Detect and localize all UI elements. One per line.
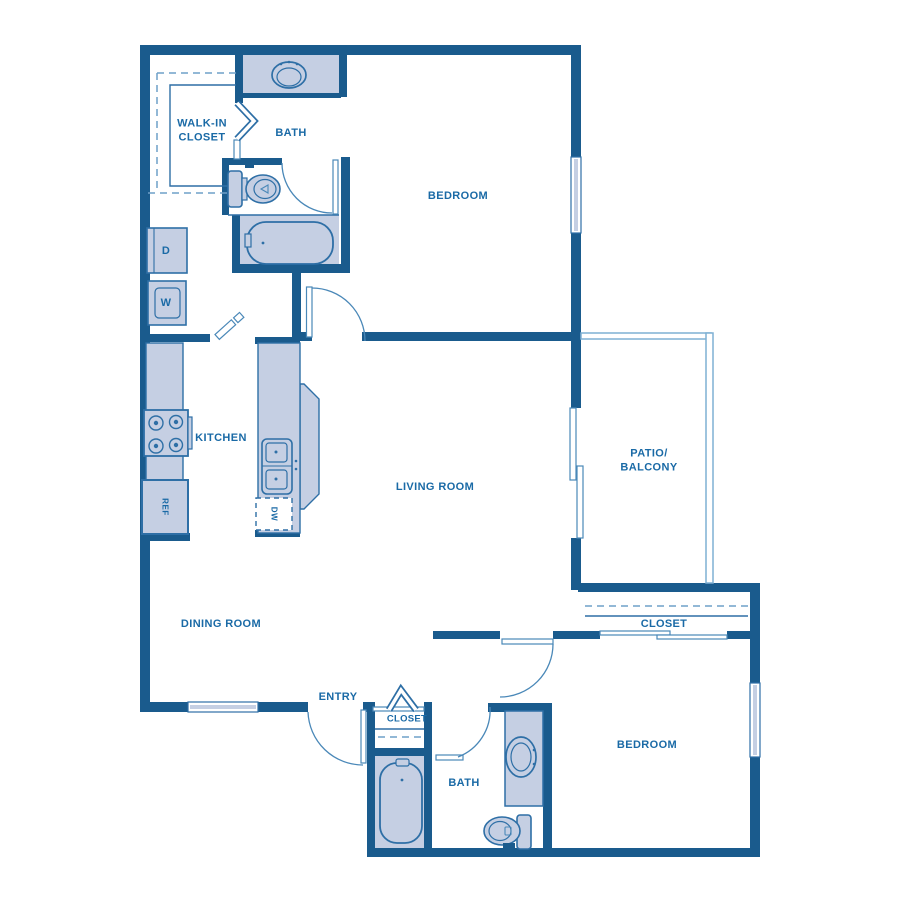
kitchen-swing-door <box>215 312 244 339</box>
bedroom1-window <box>571 157 581 233</box>
bath2-toilet <box>484 815 531 850</box>
stove <box>144 410 192 456</box>
bedroom1-door <box>307 287 366 341</box>
kitchen-sink <box>262 439 297 494</box>
refrigerator-label: REF <box>161 498 170 516</box>
bath1-label: BATH <box>275 127 306 139</box>
bath2-label: BATH <box>448 777 479 789</box>
kitchen-label: KITCHEN <box>195 432 247 444</box>
bedroom2-label: BEDROOM <box>617 739 677 751</box>
bath1-sink <box>272 61 306 88</box>
walk-in-closet-label: WALK-IN CLOSET <box>162 117 242 146</box>
bath2-bathtub <box>380 759 422 843</box>
entry-closet-label: CLOSET <box>387 714 427 725</box>
floor-plan: WALK-IN CLOSET BATH BEDROOM D W KITCHEN … <box>0 0 900 900</box>
dryer-label: D <box>162 245 170 257</box>
dishwasher-label: DW <box>270 507 279 522</box>
living-room-label: LIVING ROOM <box>396 481 474 493</box>
closet2-label: CLOSET <box>641 618 687 630</box>
bedroom1-label: BEDROOM <box>428 190 488 202</box>
bath2-vanity <box>505 711 543 806</box>
closet2-sliding-door <box>600 631 727 639</box>
dining-window <box>188 702 258 712</box>
entry-label: ENTRY <box>319 691 358 703</box>
bath1-toilet <box>228 171 280 207</box>
bath1-bathtub <box>245 222 333 264</box>
entry-door <box>308 710 366 765</box>
patio-sliding-door <box>570 408 583 538</box>
floor-plan-drawing <box>0 0 900 900</box>
dining-room-label: DINING ROOM <box>181 618 261 630</box>
bath1-toilet-room-door <box>282 160 338 214</box>
bath2-door <box>436 707 490 760</box>
bedroom2-door <box>500 639 553 697</box>
bedroom2-window <box>750 683 760 757</box>
patio-label: PATIO/ BALCONY <box>614 447 684 476</box>
washer-label: W <box>161 297 172 309</box>
